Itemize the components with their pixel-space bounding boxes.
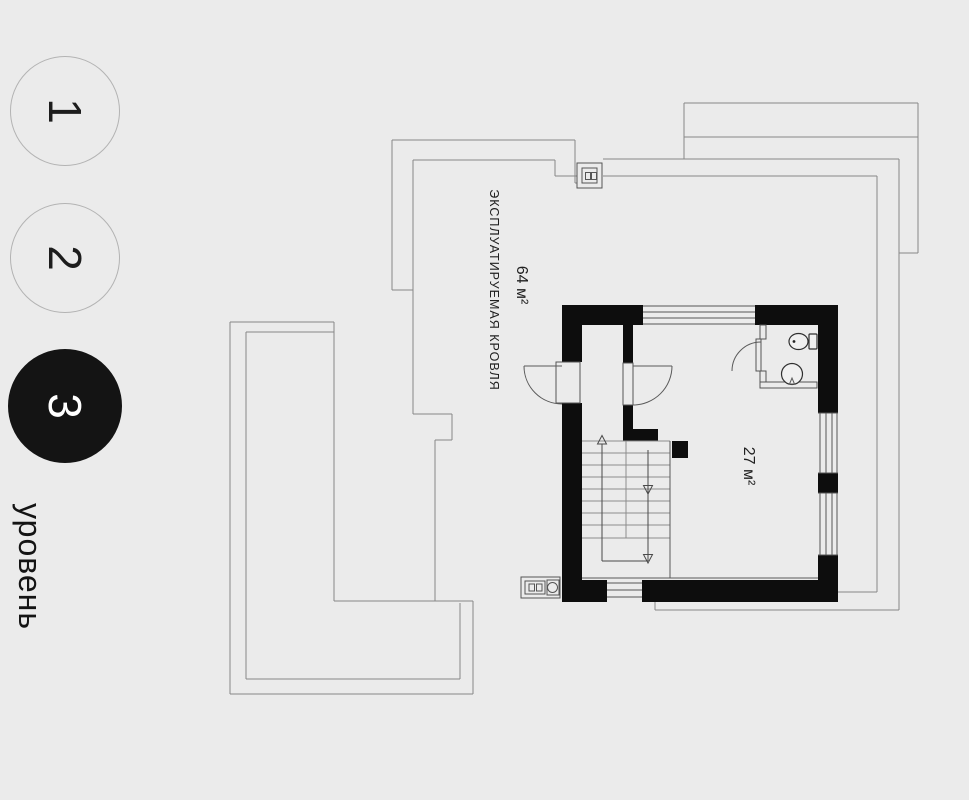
bathroom-door bbox=[732, 339, 761, 371]
windows bbox=[607, 306, 838, 597]
roof-area-label: 64 м² bbox=[513, 266, 530, 305]
staircase bbox=[582, 436, 818, 579]
toilet-icon bbox=[789, 334, 817, 350]
vent-flue-icon bbox=[521, 577, 560, 598]
stair-hall-door bbox=[623, 363, 672, 405]
roof-overhang bbox=[684, 103, 918, 253]
floor-plan: ЭКСПЛУАТИРУЕМАЯ КРОВЛЯ 64 м² 27 м² bbox=[0, 0, 969, 800]
floor-plan-viewer: 1 2 3 уровень bbox=[0, 0, 969, 800]
entry-door bbox=[524, 362, 580, 404]
room-area-label: 27 м² bbox=[740, 447, 757, 486]
chimney-icon bbox=[577, 163, 602, 188]
stair-direction-arrows bbox=[598, 436, 653, 564]
sink-icon bbox=[782, 364, 803, 385]
terrace-outline bbox=[230, 322, 473, 694]
bathroom bbox=[732, 325, 817, 388]
roof-label: ЭКСПЛУАТИРУЕМАЯ КРОВЛЯ bbox=[487, 189, 501, 391]
